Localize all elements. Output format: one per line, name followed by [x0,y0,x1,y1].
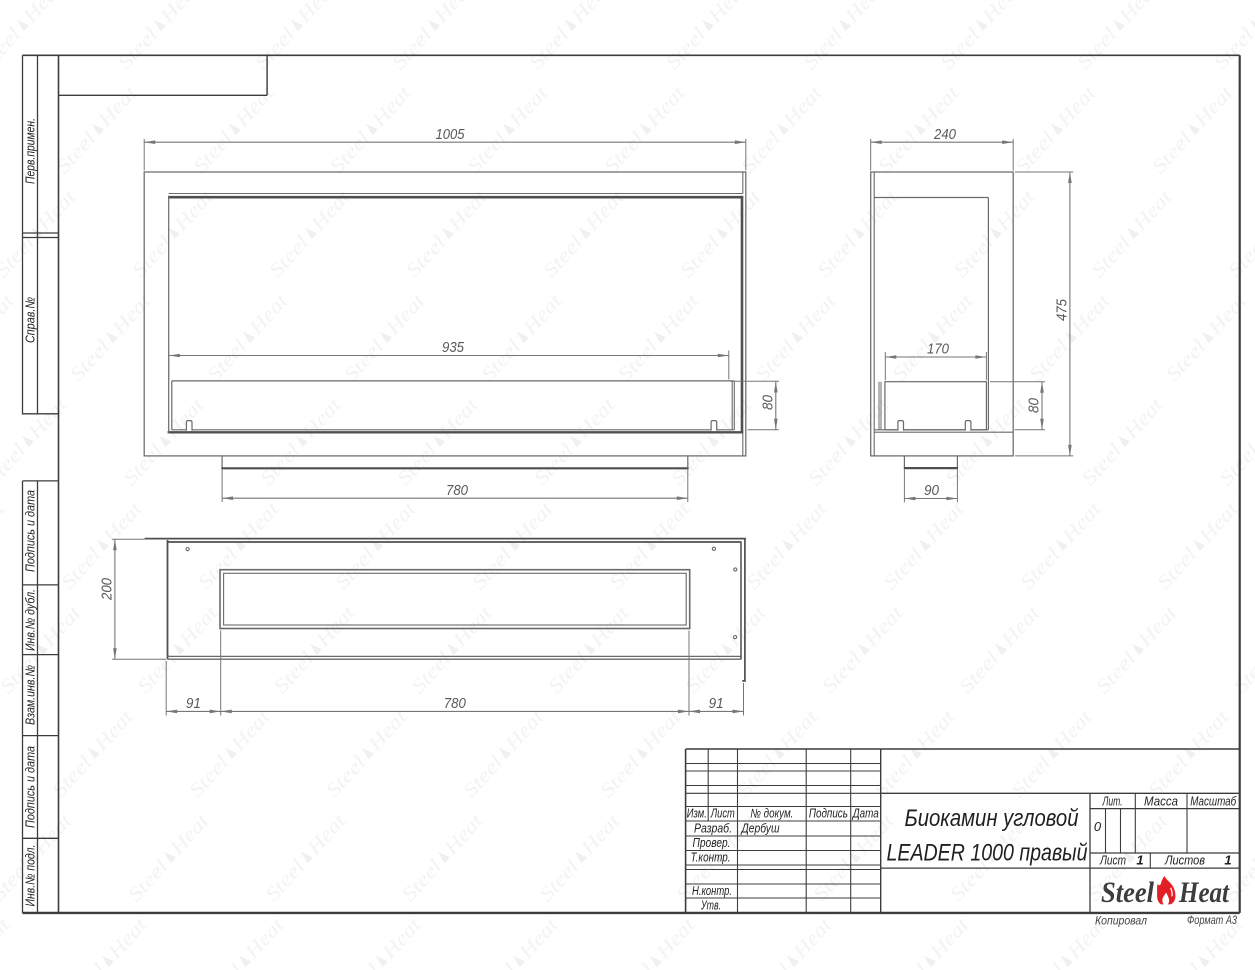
svg-text:№ докум.: № докум. [750,807,793,821]
svg-text:Листов: Листов [1164,854,1205,868]
svg-text:Steel: Steel [1101,876,1155,909]
svg-text:Масса: Масса [1144,794,1178,808]
svg-text:Справ.№: Справ.№ [22,297,37,343]
svg-text:Масштаб: Масштаб [1190,794,1237,808]
svg-text:240: 240 [933,127,956,143]
svg-text:Дата: Дата [851,807,879,821]
svg-text:Утв.: Утв. [700,898,721,912]
svg-text:0: 0 [1094,819,1102,834]
svg-text:Разраб.: Разраб. [694,821,732,835]
svg-text:Взам.инв.№: Взам.инв.№ [22,665,37,725]
svg-text:Т.контр.: Т.контр. [691,851,731,865]
svg-text:200: 200 [100,578,116,601]
svg-text:Подпись и дата: Подпись и дата [22,746,37,828]
svg-text:Подпись и дата: Подпись и дата [22,490,37,572]
svg-text:Изм.: Изм. [687,807,707,821]
svg-text:Перв.примен.: Перв.примен. [22,118,37,184]
svg-text:Лист: Лист [710,807,735,821]
svg-text:1: 1 [1136,853,1143,868]
svg-text:Лит.: Лит. [1102,794,1123,808]
svg-text:Инв.№ подл.: Инв.№ подл. [22,845,37,907]
svg-text:1005: 1005 [436,127,466,143]
svg-text:Инв.№ дубл.: Инв.№ дубл. [22,589,37,651]
svg-text:Подпись: Подпись [809,807,848,821]
svg-text:1: 1 [1224,853,1231,868]
svg-text:475: 475 [1055,298,1071,321]
svg-text:LEADER 1000 правый: LEADER 1000 правый [887,840,1088,867]
svg-text:Heat: Heat [1178,876,1230,909]
svg-text:Провер.: Провер. [693,836,731,850]
svg-text:90: 90 [924,483,939,499]
svg-text:80: 80 [760,395,776,410]
svg-text:780: 780 [444,696,466,712]
svg-text:91: 91 [709,696,724,712]
svg-text:Н.контр.: Н.контр. [692,884,732,898]
svg-text:80: 80 [1027,398,1043,413]
svg-text:Формат А3: Формат А3 [1187,915,1237,927]
svg-text:935: 935 [442,340,465,356]
svg-text:Биокамин угловой: Биокамин угловой [905,805,1079,832]
svg-text:91: 91 [186,696,201,712]
svg-text:170: 170 [927,342,949,358]
svg-text:780: 780 [446,483,468,499]
svg-text:Дербуш: Дербуш [740,821,780,835]
svg-text:Копировал: Копировал [1095,915,1147,927]
svg-text:Лист: Лист [1099,854,1126,868]
